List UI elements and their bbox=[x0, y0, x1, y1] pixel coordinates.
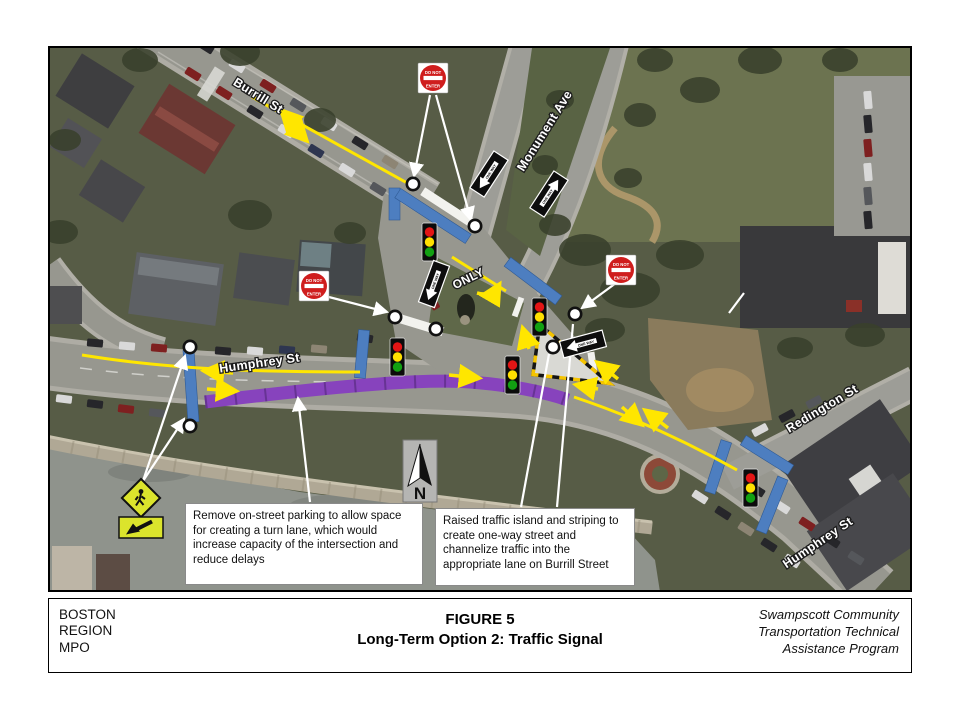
north-label: N bbox=[414, 484, 426, 503]
callout-remove-parking: Remove on-street parking to allow space … bbox=[185, 503, 423, 585]
svg-text:DO NOT: DO NOT bbox=[613, 262, 630, 267]
callout-raised-island: Raised traffic island and striping to cr… bbox=[435, 508, 635, 586]
pedestrian-arrow-plate-icon bbox=[119, 517, 163, 538]
do-not-enter-sign-icon: DO NOT ENTER bbox=[299, 271, 329, 301]
traffic-signal bbox=[743, 469, 758, 507]
svg-text:ENTER: ENTER bbox=[307, 292, 321, 297]
do-not-enter-sign-icon: DO NOT ENTER bbox=[606, 255, 636, 285]
north-arrow: N bbox=[403, 440, 437, 503]
figure-page: ONE WAY ONE WAY ONE WAY ONE WAY bbox=[0, 0, 960, 720]
traffic-signal bbox=[532, 298, 547, 336]
program-name: Swampscott Community Transportation Tech… bbox=[758, 607, 899, 658]
traffic-signal bbox=[505, 356, 520, 394]
svg-text:ENTER: ENTER bbox=[426, 84, 440, 89]
do-not-enter-sign-icon: DO NOT ENTER bbox=[418, 63, 448, 93]
traffic-signal bbox=[390, 338, 405, 376]
svg-text:DO NOT: DO NOT bbox=[425, 70, 442, 75]
svg-text:DO NOT: DO NOT bbox=[306, 278, 323, 283]
svg-text:ENTER: ENTER bbox=[614, 276, 628, 281]
aerial-map-panel: ONE WAY ONE WAY ONE WAY ONE WAY bbox=[48, 46, 912, 592]
title-block: BOSTON REGION MPO FIGURE 5 Long-Term Opt… bbox=[48, 598, 912, 673]
traffic-signal bbox=[422, 223, 437, 261]
